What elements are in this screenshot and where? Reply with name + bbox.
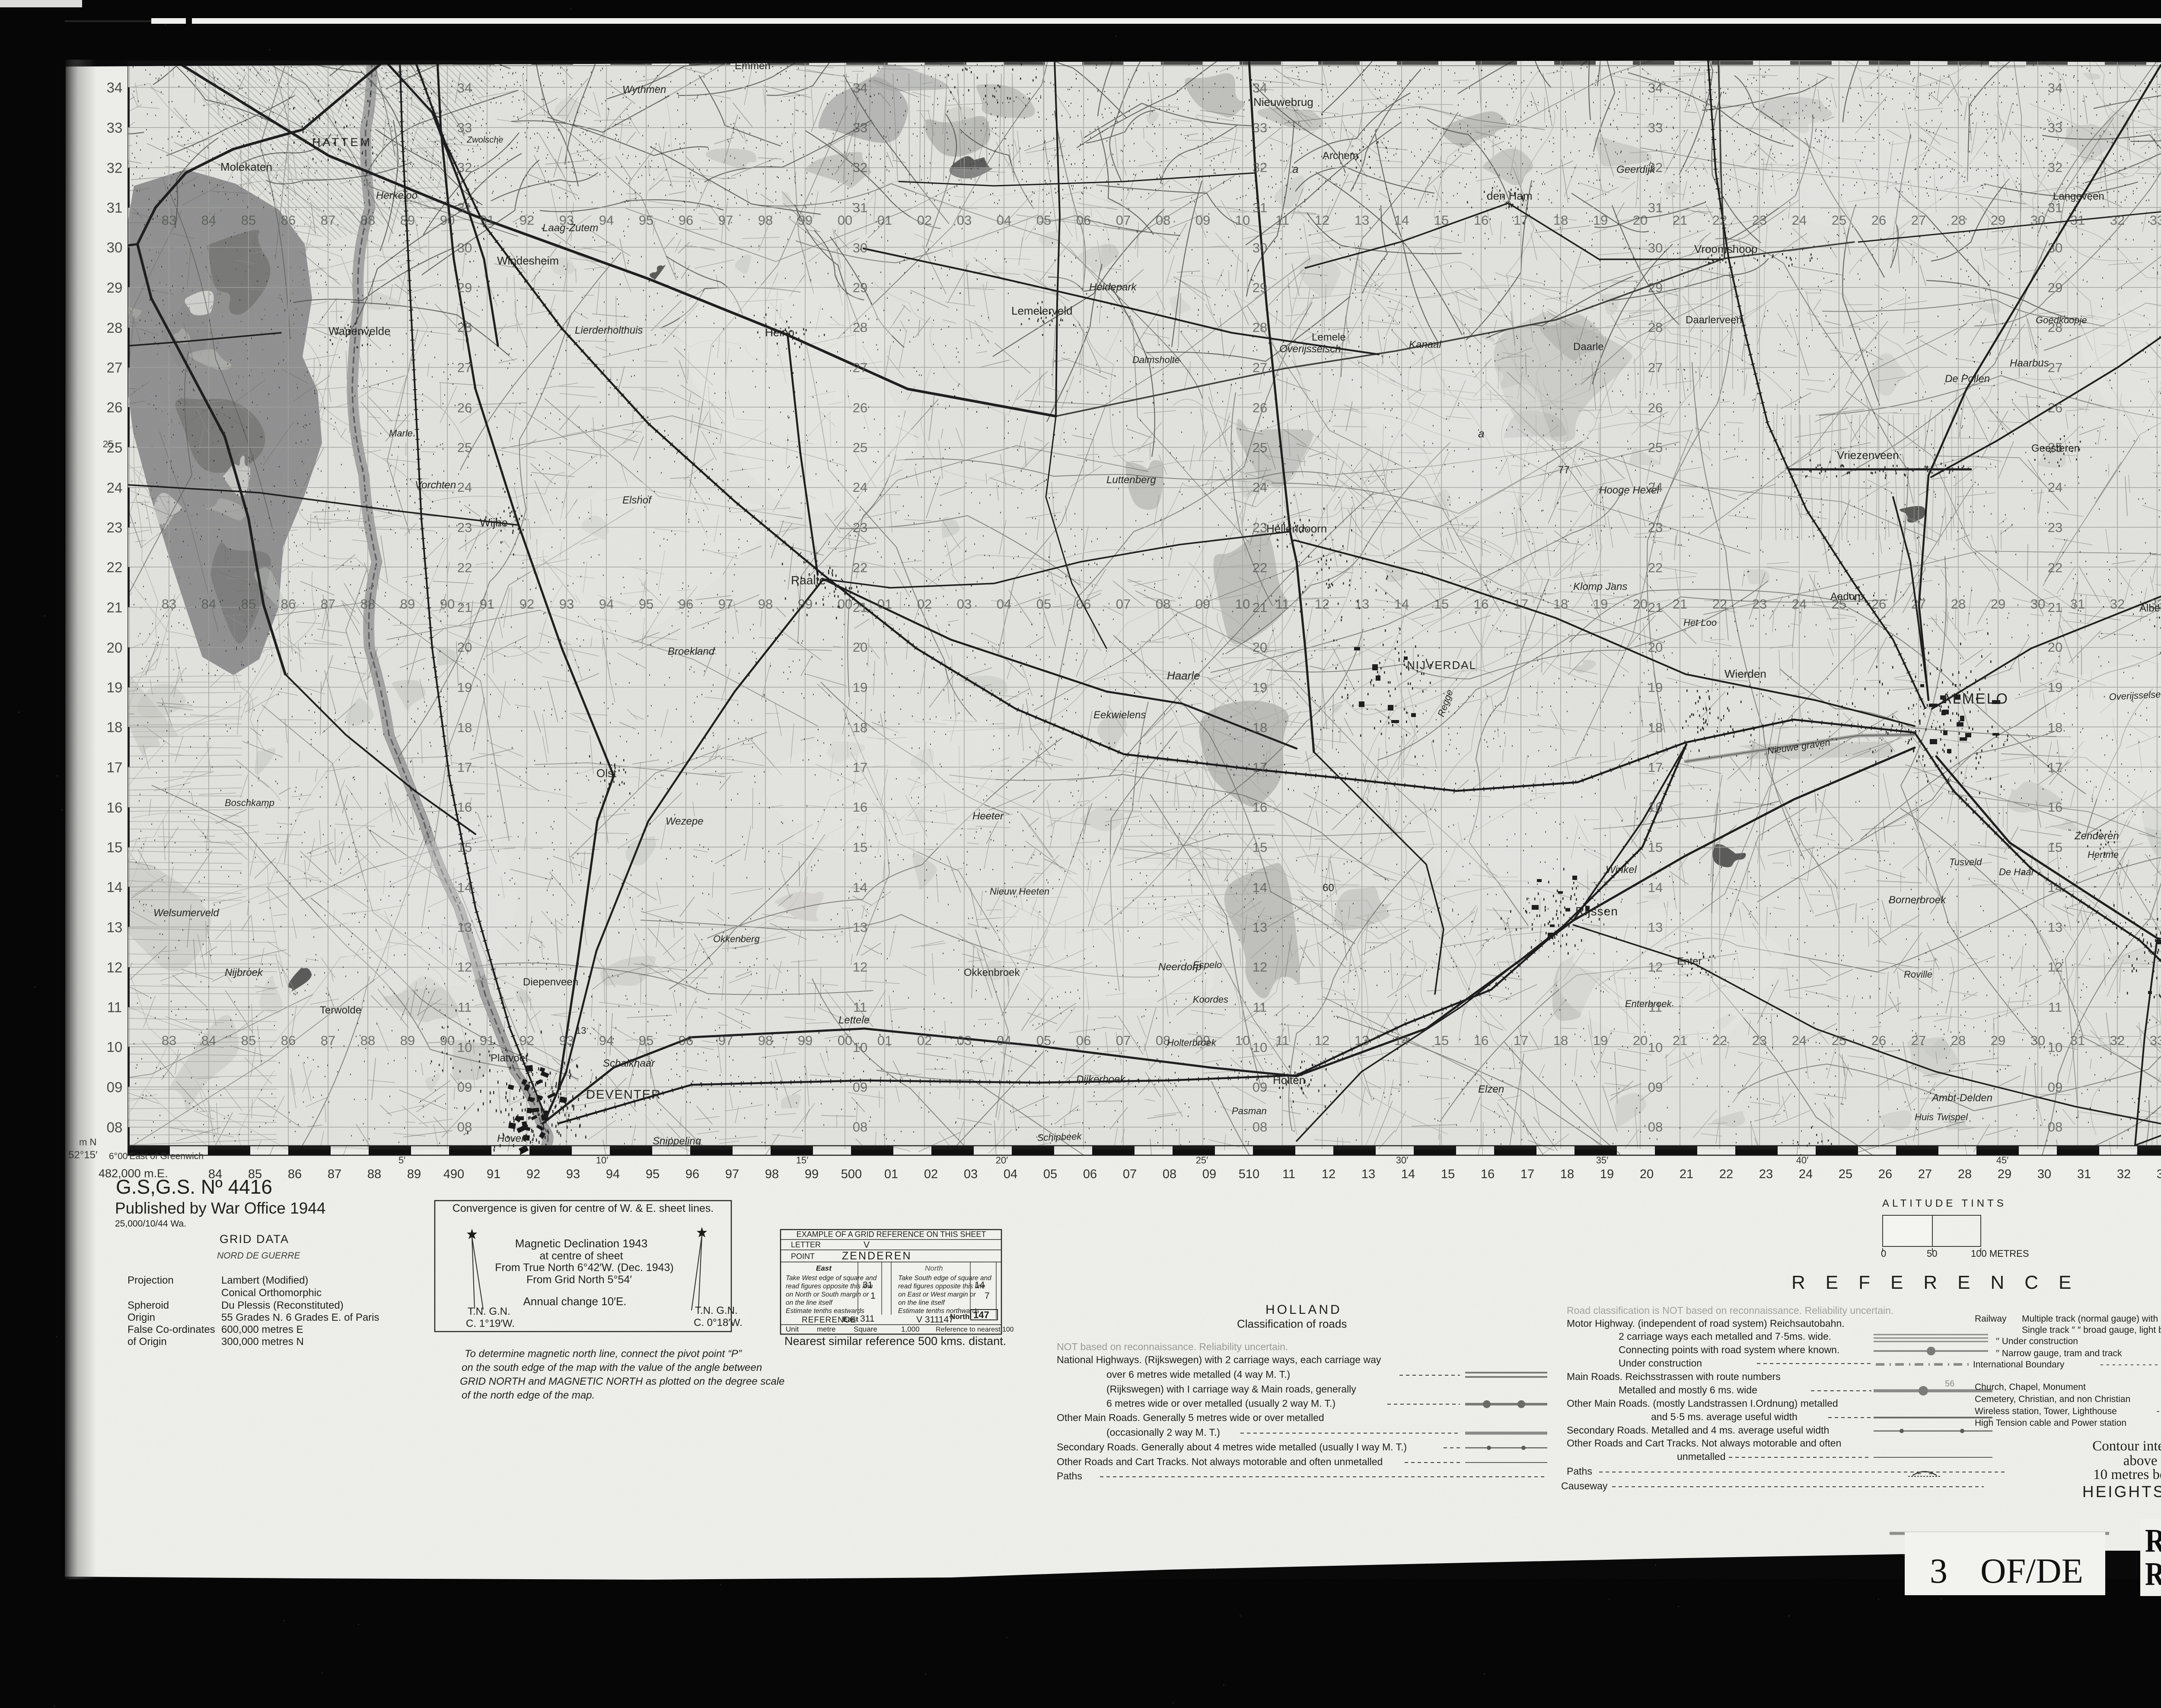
svg-text:REPEAT/: REPEAT/ bbox=[2145, 1523, 2161, 1559]
svg-text:OF/DE: OF/DE bbox=[1980, 1551, 2083, 1590]
svg-text:3: 3 bbox=[1930, 1551, 1947, 1590]
svg-text:RÉPÉTITION: RÉPÉTITION bbox=[2145, 1556, 2161, 1592]
